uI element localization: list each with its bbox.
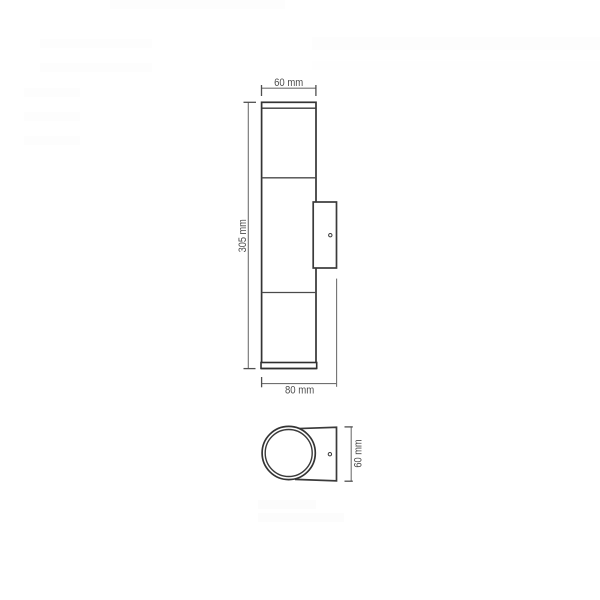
svg-text:60 mm: 60 mm [274,77,303,89]
svg-text:80 mm: 80 mm [285,384,314,396]
svg-text:305 mm: 305 mm [237,219,249,252]
svg-text:60 mm: 60 mm [352,439,364,467]
